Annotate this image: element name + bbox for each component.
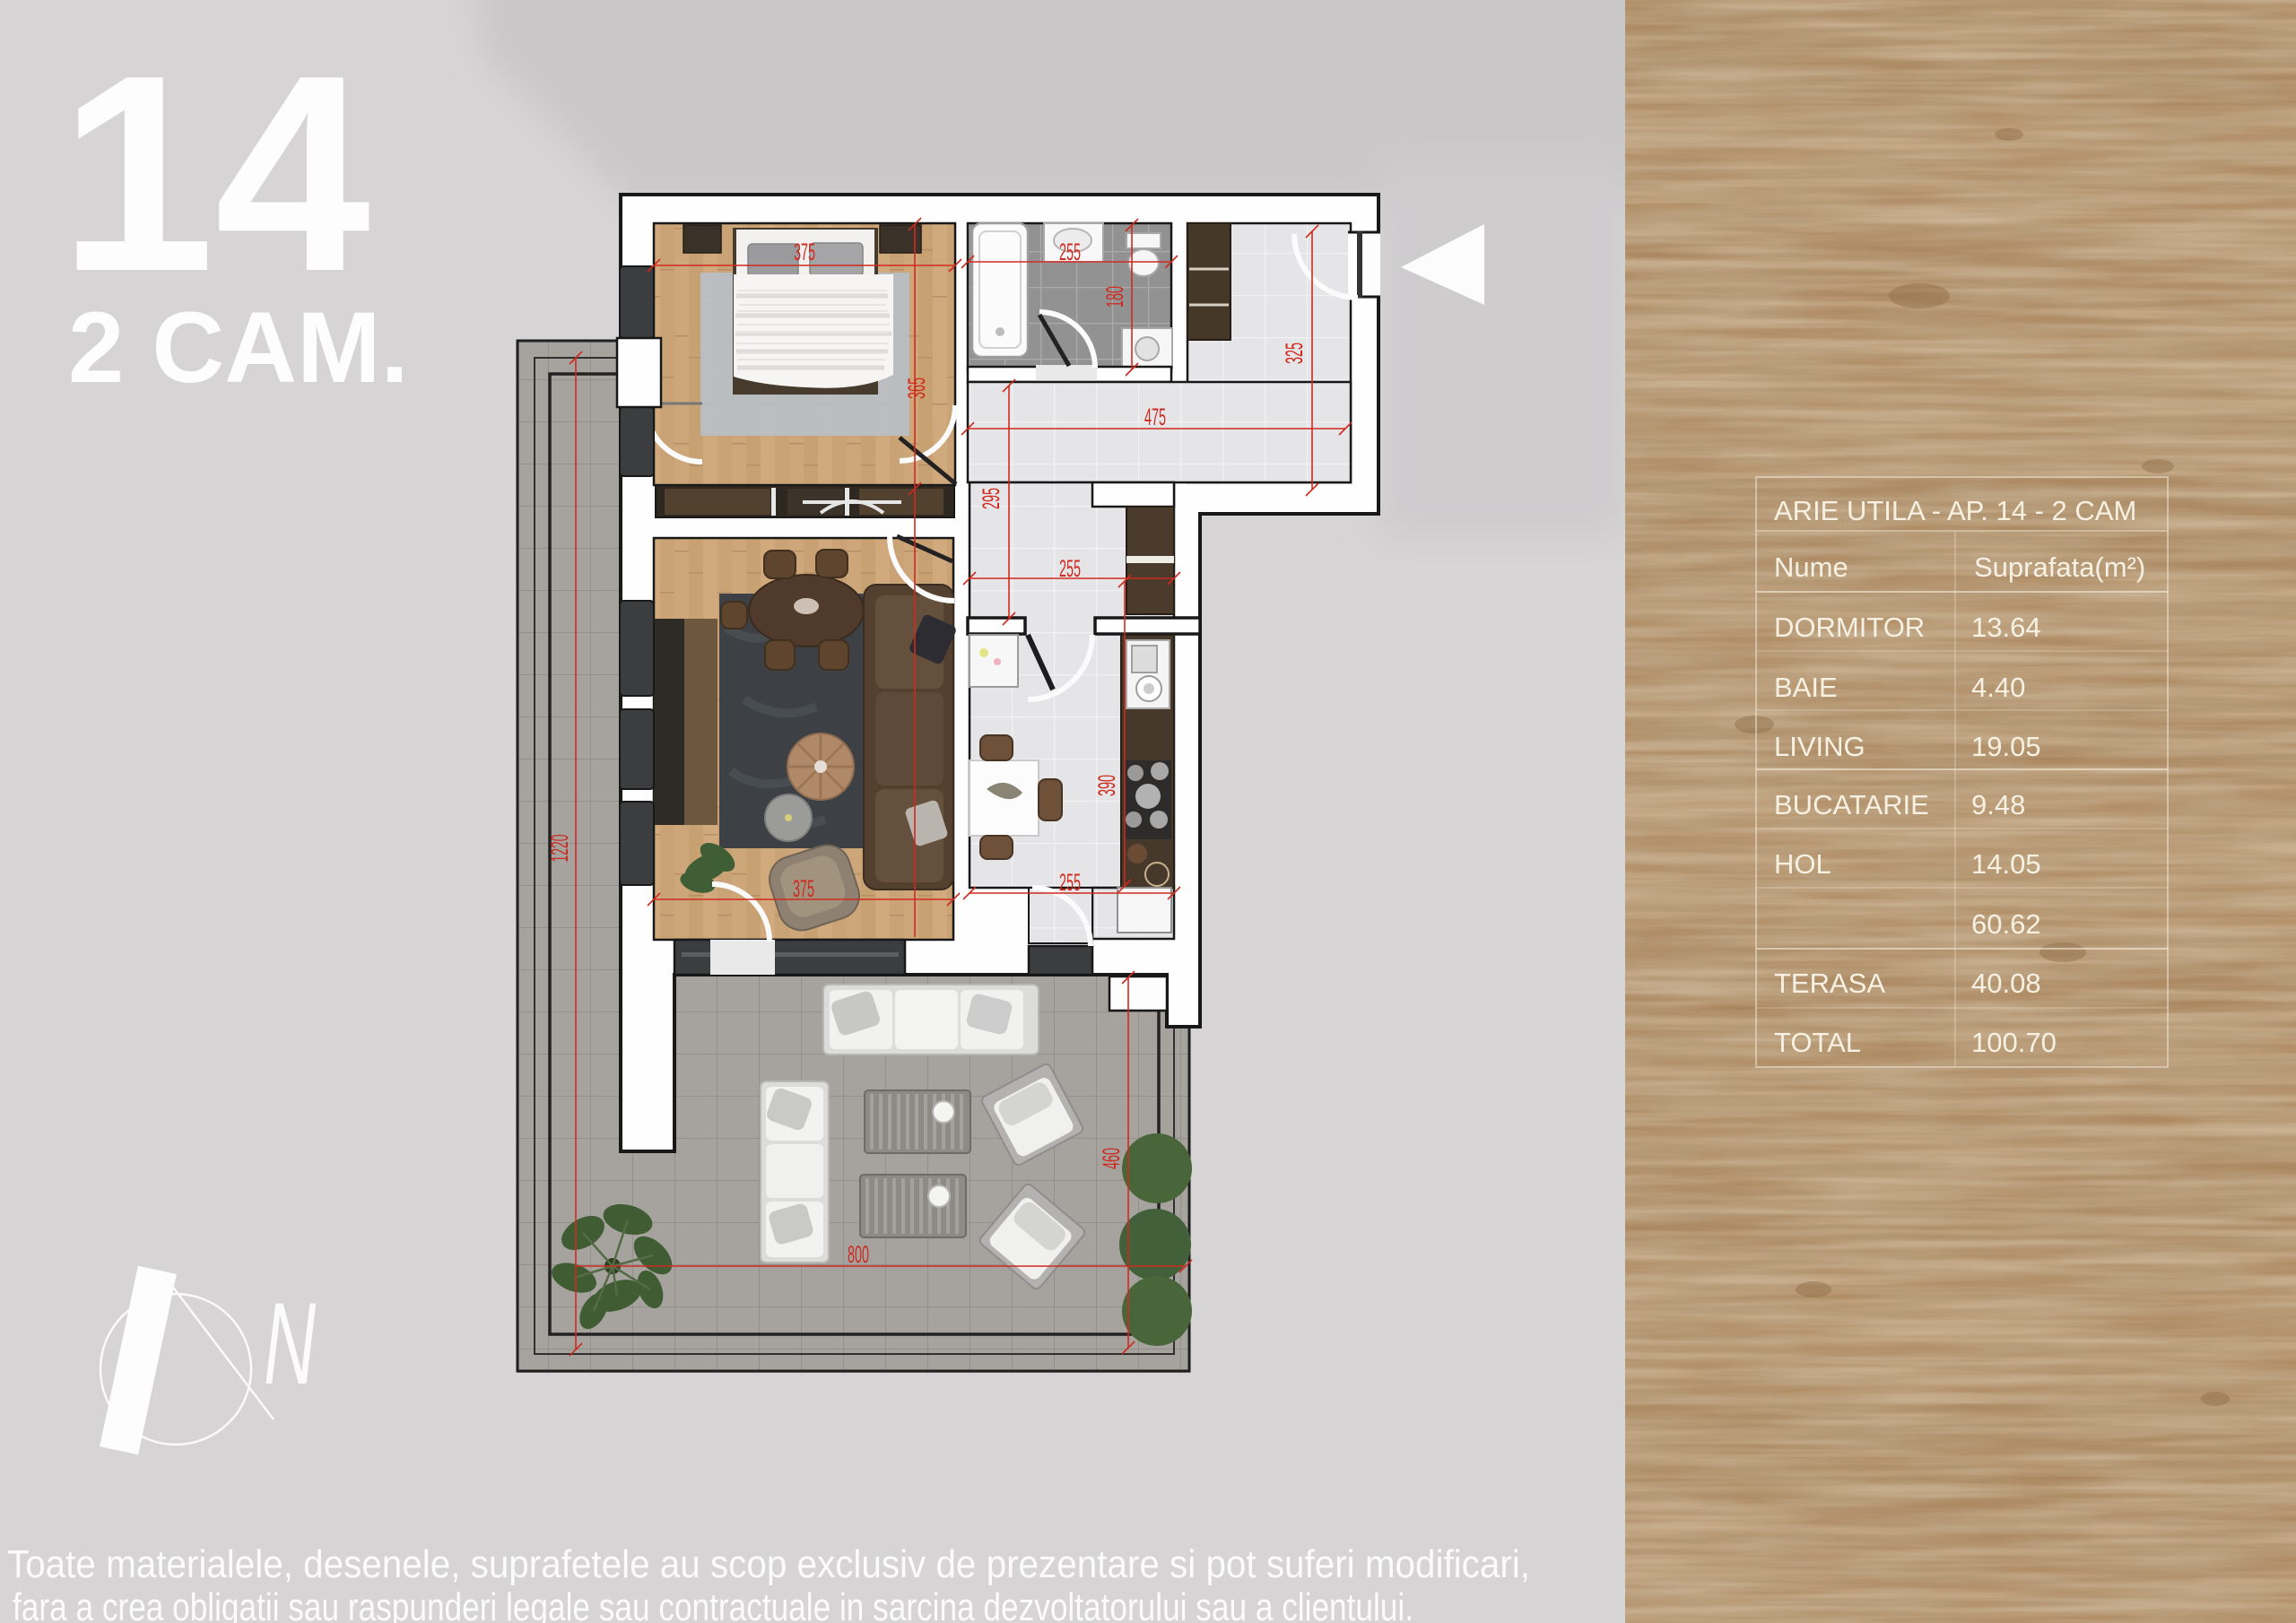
svg-text:Nume: Nume (1774, 551, 1848, 583)
svg-text:TERASA: TERASA (1774, 968, 1885, 999)
svg-text:14.05: 14.05 (1971, 848, 2041, 880)
svg-text:255: 255 (1059, 869, 1081, 896)
svg-text:375: 375 (794, 239, 815, 265)
svg-text:800: 800 (848, 1241, 869, 1268)
svg-text:HOL: HOL (1774, 848, 1831, 880)
svg-text:1220: 1220 (546, 835, 573, 863)
svg-text:BAIE: BAIE (1774, 672, 1838, 703)
svg-text:19.05: 19.05 (1971, 731, 2041, 762)
svg-text:375: 375 (793, 875, 814, 902)
svg-text:13.64: 13.64 (1971, 612, 2041, 643)
svg-text:390: 390 (1093, 775, 1120, 796)
svg-text:DORMITOR: DORMITOR (1774, 612, 1925, 643)
svg-text:2 CAM.: 2 CAM. (68, 291, 409, 404)
svg-text:180: 180 (1101, 286, 1128, 308)
svg-text:460: 460 (1098, 1148, 1125, 1169)
svg-text:Suprafata(m²): Suprafata(m²) (1974, 551, 2145, 583)
svg-text:ARIE UTILA - AP. 14 - 2 CAM: ARIE UTILA - AP. 14 - 2 CAM (1774, 495, 2136, 526)
svg-text:60.62: 60.62 (1971, 908, 2041, 940)
svg-text:255: 255 (1059, 555, 1081, 582)
svg-text:fara a crea obligatii sau rasp: fara a crea obligatii sau raspunderi leg… (13, 1585, 1413, 1623)
svg-text:365: 365 (903, 378, 930, 399)
svg-text:100.70: 100.70 (1971, 1027, 2057, 1058)
svg-text:4.40: 4.40 (1971, 672, 2025, 703)
svg-text:14: 14 (59, 18, 372, 330)
svg-text:TOTAL: TOTAL (1774, 1027, 1861, 1058)
svg-text:Toate materialele, desenele, s: Toate materialele, desenele, suprafetele… (7, 1542, 1530, 1586)
svg-text:BUCATARIE: BUCATARIE (1774, 789, 1929, 820)
svg-text:40.08: 40.08 (1971, 968, 2041, 999)
svg-text:255: 255 (1059, 239, 1081, 265)
svg-text:N: N (264, 1278, 317, 1408)
svg-text:LIVING: LIVING (1774, 731, 1865, 762)
svg-text:9.48: 9.48 (1971, 789, 2025, 820)
svg-text:325: 325 (1281, 343, 1308, 364)
svg-text:475: 475 (1144, 404, 1166, 430)
svg-text:295: 295 (978, 488, 1004, 509)
